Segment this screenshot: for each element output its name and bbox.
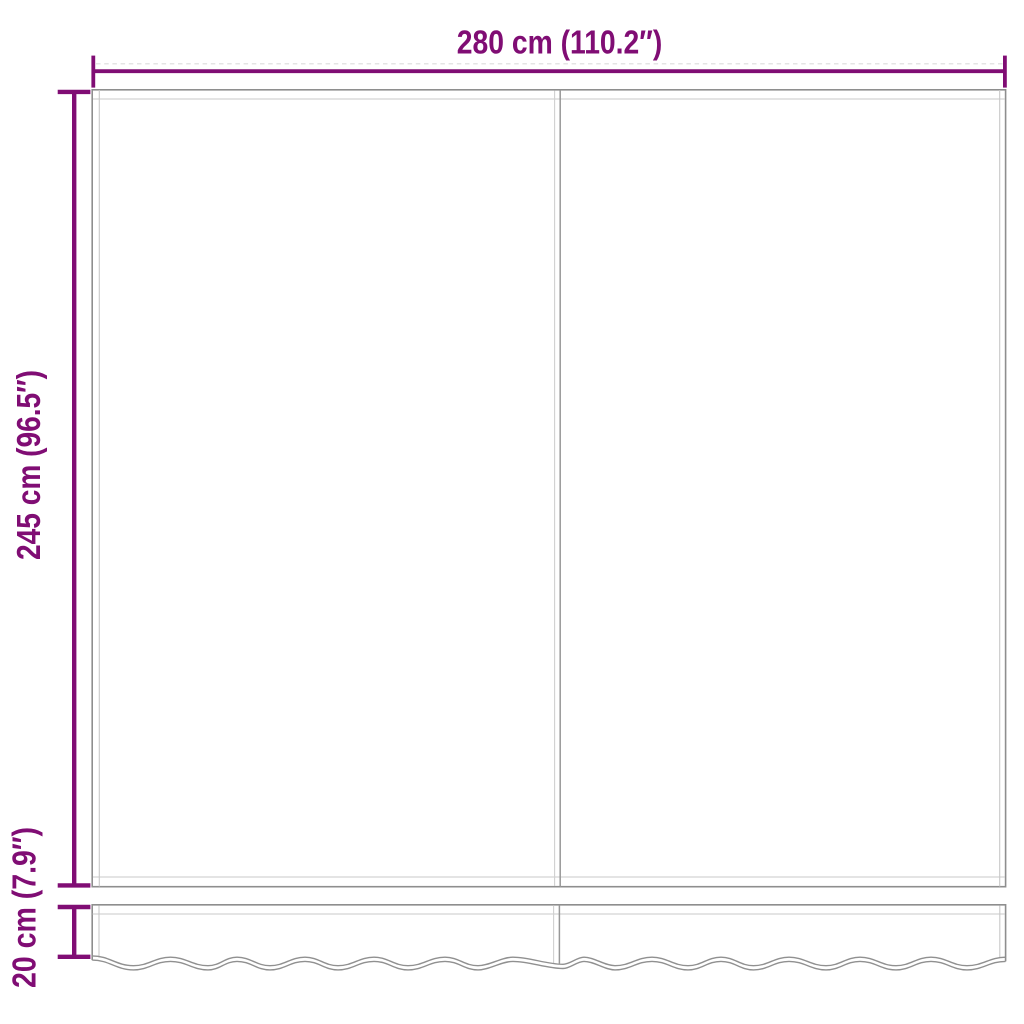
svg-text:245 cm (96.5″): 245 cm (96.5″) (10, 370, 47, 560)
svg-text:20 cm (7.9″): 20 cm (7.9″) (6, 827, 43, 988)
svg-text:280 cm (110.2″): 280 cm (110.2″) (457, 24, 663, 61)
